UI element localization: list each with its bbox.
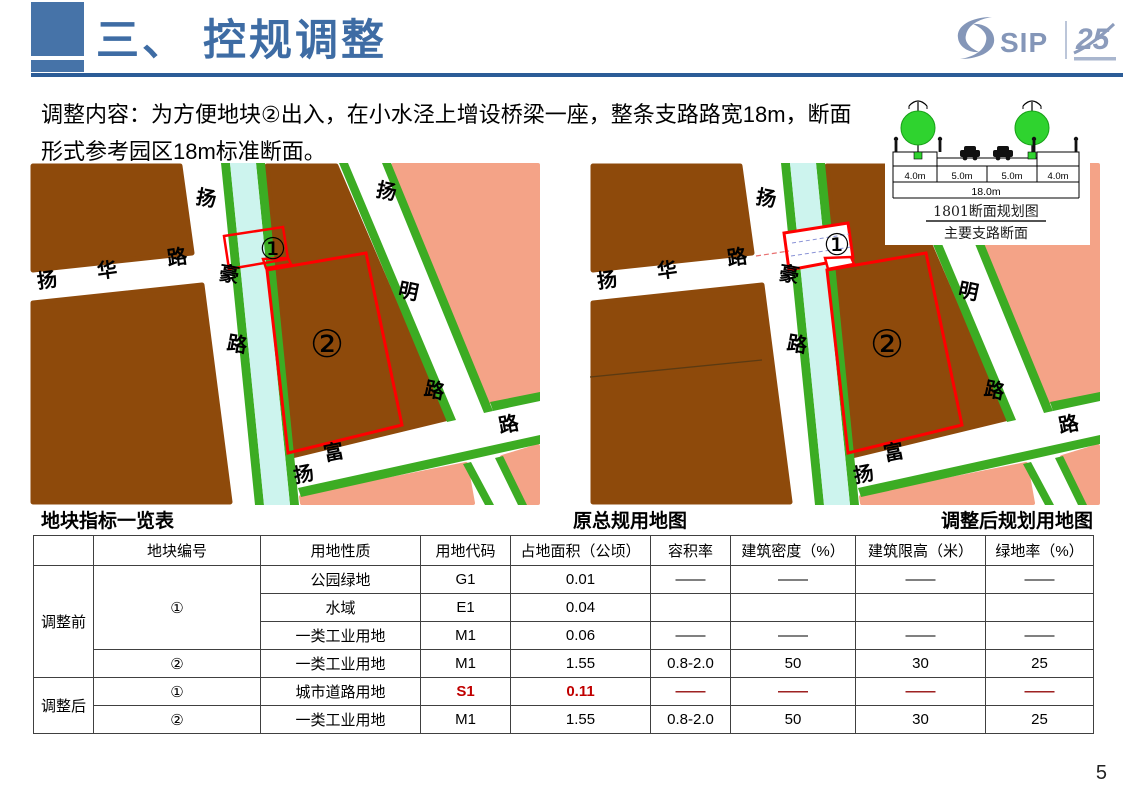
table-cell: ②: [94, 706, 261, 734]
header-cell: [34, 536, 94, 566]
bridge-centerline: [756, 251, 789, 256]
slide: { "header": { "title": "三、 控规调整", "logo_…: [0, 0, 1123, 794]
logo-tagline-bar: [1074, 57, 1116, 61]
road-label: 扬: [754, 186, 778, 212]
table-cell: G1: [421, 566, 511, 594]
table-cell: 0.01: [511, 566, 651, 594]
table-cell: [986, 594, 1094, 622]
table-cell: ②: [94, 650, 261, 678]
header-cell: 绿地率（%）: [986, 536, 1094, 566]
dim-label: 5.0m: [1001, 171, 1022, 182]
table-cell: 50: [731, 706, 856, 734]
table-cell: 30: [856, 650, 986, 678]
table-cell: ——: [986, 566, 1094, 594]
tree-pit: [1028, 152, 1036, 159]
section-subtitle: 主要支路断面: [944, 226, 1028, 242]
table-cell: 1.55: [511, 650, 651, 678]
dim-label: 4.0m: [1047, 171, 1068, 182]
parcel-1-label: ①: [260, 233, 287, 266]
dim-label: 4.0m: [904, 171, 925, 182]
table-cell: [856, 594, 986, 622]
table-cell: ——: [856, 622, 986, 650]
table-cell: 0.8-2.0: [651, 650, 731, 678]
road-label: 扬: [36, 268, 59, 294]
sip-logo-drawing: SIP 25: [948, 12, 1120, 68]
table-cell-highlight: 0.11: [511, 678, 651, 706]
table-row: 调整前 ① 公园绿地 G1 0.01 —— —— —— ——: [34, 566, 1094, 594]
table-cell-highlight: ——: [986, 678, 1094, 706]
table-header-row: 地块编号 用地性质 用地代码 占地面积（公顷） 容积率 建筑密度（%） 建筑限高…: [34, 536, 1094, 566]
road-label: 扬: [852, 461, 876, 487]
table-cell: ——: [651, 566, 731, 594]
road-label: 豪: [777, 261, 801, 288]
description-line-1: 调整内容：为方便地块②出入，在小水泾上增设桥梁一座，整条支路路宽18m，断面: [41, 102, 852, 127]
table-cell: ——: [651, 622, 731, 650]
road-section-diagram: 4.0m 5.0m 5.0m 4.0m 18.0m 1801断面规划图 主要支路…: [885, 88, 1090, 245]
page-number: 5: [1096, 762, 1107, 785]
road-label: 华: [655, 257, 678, 284]
table-cell: 25: [986, 650, 1094, 678]
header-cell: 用地性质: [261, 536, 421, 566]
table-cell: 一类工业用地: [261, 650, 421, 678]
table-cell: 0.8-2.0: [651, 706, 731, 734]
title-divider: [31, 73, 1123, 77]
table-caption: 地块指标一览表: [41, 506, 174, 533]
road-label: 豪: [217, 261, 241, 288]
road-section-drawing: 4.0m 5.0m 5.0m 4.0m 18.0m 1801断面规划图 主要支路…: [885, 88, 1090, 245]
table-cell: 一类工业用地: [261, 622, 421, 650]
header-cell: 建筑密度（%）: [731, 536, 856, 566]
left-map-caption: 原总规用地图: [480, 506, 780, 533]
total-width-label: 18.0m: [971, 186, 1000, 198]
table-row: ② 一类工业用地 M1 1.55 0.8-2.0 50 30 25: [34, 650, 1094, 678]
table-cell: 25: [986, 706, 1094, 734]
table-cell: ——: [731, 622, 856, 650]
table-cell: M1: [421, 622, 511, 650]
table-cell-highlight: ——: [731, 678, 856, 706]
table-cell: 城市道路用地: [261, 678, 421, 706]
header-cell: 占地面积（公顷）: [511, 536, 651, 566]
group-label-cell: 调整后: [34, 678, 94, 734]
road-label: 华: [95, 257, 118, 284]
table-cell: 0.06: [511, 622, 651, 650]
table-row-adjusted: 调整后 ① 城市道路用地 S1 0.11 —— —— —— ——: [34, 678, 1094, 706]
table-row: ② 一类工业用地 M1 1.55 0.8-2.0 50 30 25: [34, 706, 1094, 734]
dim-label: 5.0m: [951, 171, 972, 182]
table-cell-highlight: ——: [651, 678, 731, 706]
road-label: 扬: [194, 186, 218, 212]
table-cell: 一类工业用地: [261, 706, 421, 734]
table-cell: 水域: [261, 594, 421, 622]
section-title: 1801断面规划图: [933, 204, 1039, 220]
parcel-2-label: ②: [310, 324, 344, 366]
header-cell: 地块编号: [94, 536, 261, 566]
road-label: 路: [1057, 410, 1082, 438]
parcel-1-label: ①: [824, 229, 851, 262]
road-label: 扬: [374, 178, 398, 205]
tree-pit: [914, 152, 922, 159]
header-cell: 用地代码: [421, 536, 511, 566]
table-cell: E1: [421, 594, 511, 622]
road-label: 扬: [292, 461, 316, 487]
header-cell: 容积率: [651, 536, 731, 566]
road-label: 扬: [596, 268, 619, 294]
description-line-2: 形式参考园区18m标准断面。: [41, 139, 326, 164]
table-cell: M1: [421, 650, 511, 678]
right-map-caption: 调整后规划用地图: [941, 506, 1093, 533]
sip-swoosh-icon: [958, 17, 994, 59]
table-cell: [731, 594, 856, 622]
sip-logo: SIP 25: [948, 12, 1120, 68]
table-cell-highlight: S1: [421, 678, 511, 706]
parcel-2-label: ②: [870, 324, 904, 366]
page-title: 三、 控规调整: [96, 6, 387, 68]
group-label-cell: 调整前: [34, 566, 94, 678]
parcel-indicator-table: 地块编号 用地性质 用地代码 占地面积（公顷） 容积率 建筑密度（%） 建筑限高…: [33, 535, 1094, 734]
table-cell: 50: [731, 650, 856, 678]
table-cell: ①: [94, 678, 261, 706]
table-cell: 30: [856, 706, 986, 734]
original-plan-map-drawing: 扬 华 路 扬 豪 路 扬 明 路 扬 富 路 ① ②: [30, 163, 540, 505]
road-label: 明: [956, 278, 980, 305]
table-cell: 1.55: [511, 706, 651, 734]
road-label: 路: [497, 410, 522, 438]
table-cell: ——: [731, 566, 856, 594]
tree-canopy: [901, 111, 935, 145]
original-plan-map: 扬 华 路 扬 豪 路 扬 明 路 扬 富 路 ① ②: [30, 163, 540, 505]
table-cell: [651, 594, 731, 622]
table-cell: M1: [421, 706, 511, 734]
title-deco-square: [31, 2, 84, 56]
table-cell: 0.04: [511, 594, 651, 622]
table-cell: 公园绿地: [261, 566, 421, 594]
header-cell: 建筑限高（米）: [856, 536, 986, 566]
adjustment-description: 调整内容：为方便地块②出入，在小水泾上增设桥梁一座，整条支路路宽18m，断面形式…: [41, 96, 901, 170]
table-cell: ——: [986, 622, 1094, 650]
sip-logo-text: SIP: [1000, 27, 1048, 58]
table-cell: ——: [856, 566, 986, 594]
table-cell: ①: [94, 566, 261, 650]
title-deco-bar: [31, 60, 84, 72]
road-label: 明: [396, 278, 420, 305]
table-cell-highlight: ——: [856, 678, 986, 706]
